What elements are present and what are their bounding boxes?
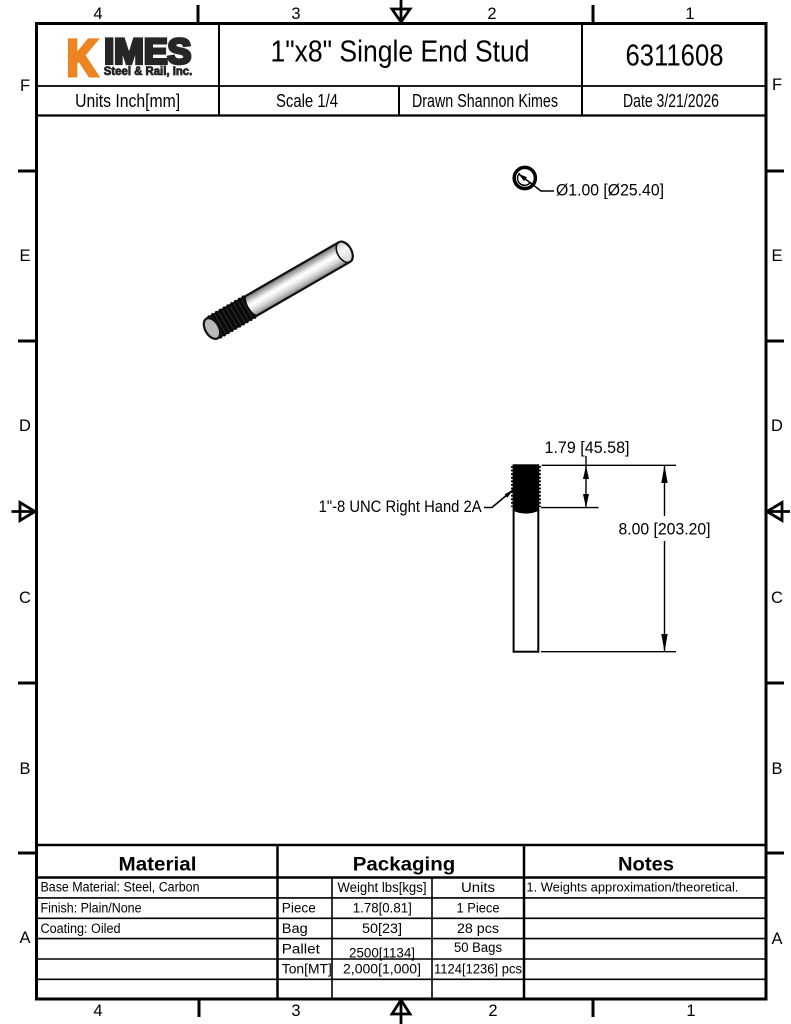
- svg-text:C: C: [771, 589, 783, 607]
- svg-text:Ton[MT]: Ton[MT]: [282, 962, 332, 978]
- svg-text:1: 1: [686, 1002, 695, 1020]
- svg-text:E: E: [19, 247, 30, 265]
- svg-text:1.79 [45.58]: 1.79 [45.58]: [545, 438, 630, 457]
- svg-text:B: B: [19, 760, 30, 778]
- svg-text:2500[1134]: 2500[1134]: [349, 946, 415, 962]
- svg-text:Base Material: Steel, Carbon: Base Material: Steel, Carbon: [41, 880, 200, 896]
- svg-text:Piece: Piece: [282, 901, 316, 917]
- svg-text:Notes: Notes: [618, 854, 674, 876]
- svg-text:1124[1236] pcs: 1124[1236] pcs: [434, 962, 522, 978]
- svg-text:6311608: 6311608: [626, 38, 724, 73]
- svg-text:K: K: [67, 30, 98, 87]
- svg-text:F: F: [20, 77, 30, 95]
- svg-text:2: 2: [487, 5, 496, 23]
- svg-text:1 Piece: 1 Piece: [457, 901, 500, 917]
- svg-text:F: F: [772, 76, 782, 94]
- svg-text:A: A: [19, 929, 30, 947]
- svg-text:Material: Material: [119, 854, 197, 876]
- svg-text:8.00 [203.20]: 8.00 [203.20]: [619, 520, 711, 539]
- svg-text:Packaging: Packaging: [353, 854, 456, 876]
- svg-text:A: A: [771, 930, 782, 948]
- svg-text:Pallet: Pallet: [282, 941, 320, 957]
- svg-text:50[23]: 50[23]: [362, 921, 402, 937]
- svg-text:4: 4: [93, 5, 102, 23]
- svg-text:1.78[0.81]: 1.78[0.81]: [353, 901, 412, 917]
- svg-text:50 Bags: 50 Bags: [454, 940, 502, 956]
- svg-text:4: 4: [93, 1002, 102, 1020]
- svg-text:2,000[1,000]: 2,000[1,000]: [343, 962, 421, 978]
- svg-text:Steel & Rail, Inc.: Steel & Rail, Inc.: [104, 66, 193, 78]
- svg-text:Drawn Shannon Kimes: Drawn Shannon Kimes: [412, 91, 558, 111]
- svg-text:C: C: [19, 589, 31, 607]
- svg-text:1"x8" Single End Stud: 1"x8" Single End Stud: [271, 34, 530, 69]
- svg-text:Units Inch[mm]: Units Inch[mm]: [75, 91, 180, 111]
- svg-text:Date 3/21/2026: Date 3/21/2026: [623, 91, 719, 111]
- svg-text:E: E: [771, 247, 782, 265]
- svg-text:Scale 1/4: Scale 1/4: [276, 91, 338, 111]
- svg-text:Finish: Plain/None: Finish: Plain/None: [41, 901, 142, 917]
- svg-text:Coating: Oiled: Coating: Oiled: [41, 921, 121, 937]
- svg-text:28 pcs: 28 pcs: [457, 921, 499, 937]
- svg-text:D: D: [19, 417, 31, 435]
- svg-text:2: 2: [488, 1002, 497, 1020]
- svg-text:Weight lbs[kgs]: Weight lbs[kgs]: [338, 880, 427, 896]
- svg-text:3: 3: [291, 5, 300, 23]
- svg-text:Ø1.00 [Ø25.40]: Ø1.00 [Ø25.40]: [556, 181, 664, 200]
- svg-text:1: 1: [685, 5, 694, 23]
- svg-text:Units: Units: [461, 880, 495, 896]
- svg-text:1. Weights approximation/theor: 1. Weights approximation/theoretical.: [526, 880, 738, 895]
- svg-text:3: 3: [291, 1002, 300, 1020]
- svg-text:Bag: Bag: [282, 921, 308, 937]
- svg-text:D: D: [771, 417, 783, 435]
- svg-text:B: B: [771, 760, 782, 778]
- svg-text:1"-8 UNC Right Hand 2A: 1"-8 UNC Right Hand 2A: [319, 497, 483, 516]
